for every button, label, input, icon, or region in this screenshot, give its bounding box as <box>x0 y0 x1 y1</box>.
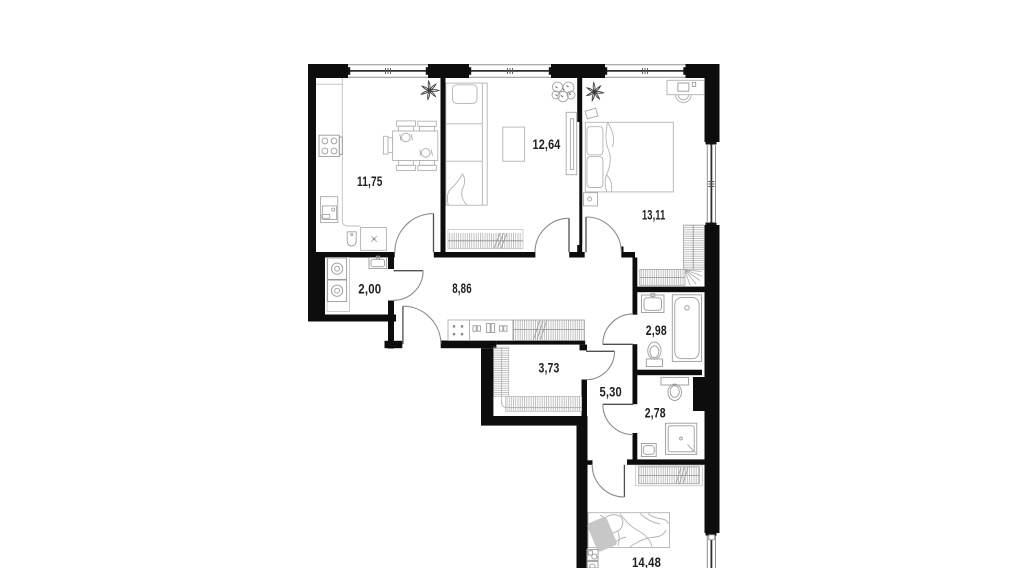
svg-text:8,86: 8,86 <box>452 281 472 296</box>
svg-text:2,78: 2,78 <box>645 405 666 420</box>
svg-text:2,98: 2,98 <box>646 323 667 338</box>
svg-text:12,64: 12,64 <box>533 137 561 152</box>
svg-text:14,48: 14,48 <box>632 555 661 568</box>
svg-text:11,75: 11,75 <box>357 174 383 189</box>
svg-text:3,73: 3,73 <box>539 361 560 376</box>
svg-text:2,00: 2,00 <box>358 282 381 297</box>
svg-text:5,30: 5,30 <box>599 384 622 399</box>
svg-text:13,11: 13,11 <box>642 207 666 222</box>
